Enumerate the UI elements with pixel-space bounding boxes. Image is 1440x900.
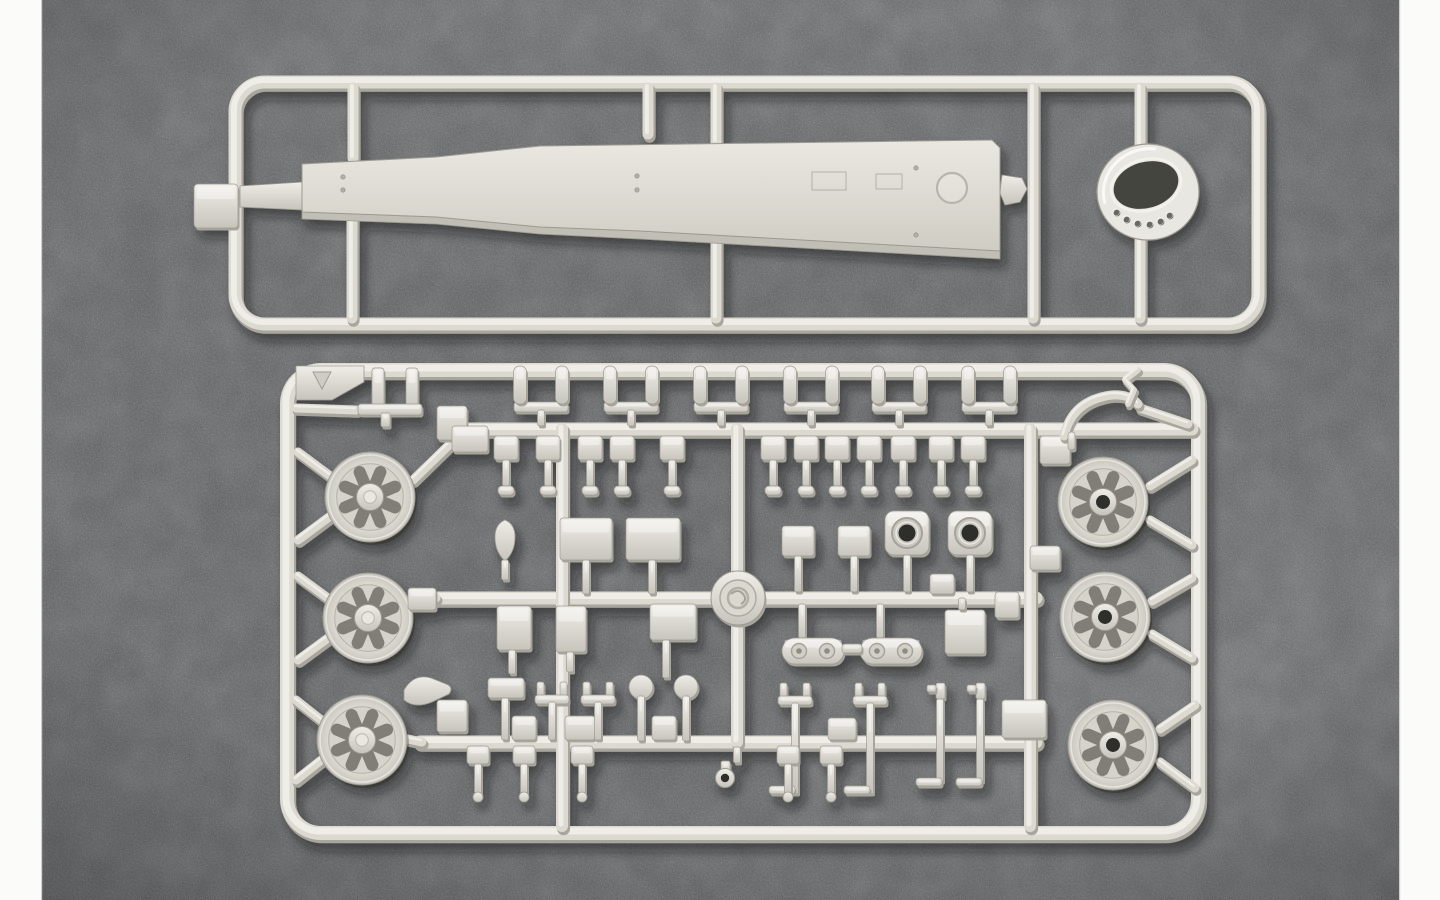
peg-part	[916, 368, 924, 379]
hanging-bracket	[894, 438, 913, 445]
part-leg	[477, 766, 479, 775]
peg-part	[786, 368, 794, 379]
hanging-bracket	[832, 488, 843, 491]
nozzle-part	[979, 685, 983, 690]
part-leg	[879, 606, 881, 616]
peg-part	[606, 368, 614, 379]
needle-part	[1071, 434, 1073, 439]
hanging-bracket	[932, 438, 951, 445]
part-leg	[988, 412, 990, 417]
fork-foot	[847, 788, 868, 791]
part-leg	[569, 654, 571, 660]
fitting-box	[559, 608, 584, 622]
part-leg	[597, 704, 599, 715]
fitting-box	[440, 702, 465, 712]
fitting-box	[998, 594, 1017, 602]
part-leg	[787, 766, 789, 775]
part-leg	[621, 462, 623, 470]
fork-part	[586, 684, 588, 689]
part-leg	[810, 412, 812, 417]
fitting-box	[785, 528, 812, 537]
hanging-bracket	[968, 488, 979, 491]
fitting-box	[491, 680, 522, 686]
part-leg	[898, 412, 900, 417]
hanging-bracket	[801, 488, 812, 491]
hanging-bracket	[764, 438, 783, 445]
nozzle-part	[970, 687, 974, 690]
pi-part	[358, 404, 422, 415]
part-leg	[665, 642, 667, 653]
hanging-bracket	[497, 438, 516, 445]
part-leg	[801, 606, 803, 616]
part-leg	[836, 462, 838, 470]
part-leg	[868, 462, 870, 470]
hanging-bracket	[539, 438, 558, 445]
hanging-bracket	[667, 488, 678, 491]
lower-bracket	[516, 748, 533, 753]
part-leg	[504, 700, 506, 713]
part-leg	[939, 701, 941, 726]
nozzle-foot	[919, 780, 940, 783]
part-leg	[685, 698, 687, 712]
fitting-box	[411, 590, 434, 597]
fork-part	[881, 685, 883, 690]
pi-part	[361, 406, 420, 409]
hanging-bracket	[964, 438, 983, 445]
hanging-bracket	[860, 438, 879, 445]
peg-part	[964, 368, 972, 379]
lower-bracket	[823, 748, 840, 753]
fitting-box	[440, 408, 465, 418]
turret-ring-part	[1097, 144, 1199, 240]
fork-part	[783, 685, 785, 690]
lower-bracket	[780, 748, 797, 753]
fork-part	[563, 684, 565, 689]
peg-part	[558, 368, 566, 379]
part-leg	[523, 766, 525, 775]
hanging-bracket	[613, 438, 632, 445]
part-leg	[551, 704, 553, 715]
fork-part	[540, 684, 542, 689]
hanging-bracket	[864, 488, 875, 491]
pi-part	[384, 415, 388, 419]
part-leg	[961, 600, 963, 604]
part-leg	[940, 462, 942, 470]
part-leg	[805, 462, 807, 470]
hanging-bracket	[663, 438, 682, 445]
fitting-box	[1005, 702, 1044, 713]
peg-part	[828, 368, 836, 379]
fitting-box	[1033, 548, 1058, 555]
part-leg	[505, 462, 507, 470]
nozzle-part	[930, 687, 934, 690]
fitting-box	[655, 718, 674, 725]
part-leg	[720, 412, 722, 417]
part-leg	[797, 558, 799, 569]
part-leg	[772, 462, 774, 470]
fork-part	[538, 697, 567, 700]
fork-part	[806, 685, 808, 690]
pi-part	[409, 370, 416, 383]
link-bar	[845, 646, 860, 649]
ball-head-peg	[629, 675, 653, 699]
right-bar-edge	[1399, 0, 1400, 900]
hanging-bracket	[828, 438, 847, 445]
part-leg	[830, 766, 832, 775]
peg-part	[516, 368, 524, 379]
part-leg	[671, 462, 673, 470]
peg-part	[696, 368, 704, 379]
part-leg	[581, 766, 583, 775]
fitting-box	[841, 528, 868, 537]
part-leg	[511, 652, 513, 659]
fork-part	[781, 698, 810, 701]
fitting-box	[455, 428, 486, 436]
model-kit-sprues-photo: Photograph of two light-gray injection-m…	[0, 0, 1440, 900]
nozzle-foot	[959, 780, 980, 783]
part-leg	[979, 701, 981, 726]
part-leg	[585, 562, 587, 572]
lower-bracket	[574, 748, 591, 753]
part-leg	[972, 462, 974, 470]
hanging-bracket	[898, 488, 909, 491]
part-leg	[540, 412, 542, 417]
fork-part	[856, 698, 885, 701]
hanging-bracket	[797, 438, 816, 445]
sprue-side-tab	[197, 186, 236, 199]
lower-bracket	[470, 748, 487, 753]
part-leg	[906, 557, 908, 568]
fitting-box	[515, 718, 534, 725]
pi-part	[375, 370, 382, 383]
part-leg	[902, 462, 904, 470]
part-leg	[853, 558, 855, 569]
part-leg	[547, 462, 549, 470]
peg-part	[874, 368, 882, 379]
part-leg	[794, 705, 796, 732]
peg-part	[648, 368, 656, 379]
fitting-box	[948, 612, 983, 625]
hanging-bracket	[581, 438, 600, 445]
part-leg	[630, 412, 632, 417]
part-leg	[736, 749, 738, 754]
part-leg	[589, 462, 591, 470]
part-leg	[869, 705, 871, 732]
part-leg	[640, 698, 642, 712]
fitting-box	[653, 606, 694, 617]
part-leg	[504, 562, 506, 568]
hanging-bracket	[617, 488, 628, 491]
fork-part	[858, 685, 860, 690]
fitting-box	[933, 576, 952, 582]
hanging-bracket	[585, 488, 596, 491]
nozzle-part	[939, 685, 943, 690]
keyhole-part	[724, 763, 728, 767]
left-white-bar	[0, 0, 42, 900]
photo-canvas	[0, 0, 1440, 900]
left-bar-edge	[41, 0, 42, 900]
ball-head-peg	[674, 675, 698, 699]
hanging-bracket	[501, 488, 512, 491]
fitting-box	[629, 520, 678, 533]
fitting-box	[500, 608, 529, 621]
fitting-box	[831, 720, 854, 727]
part-leg	[969, 557, 971, 568]
fitting-box	[568, 718, 593, 725]
fork-part	[584, 697, 613, 700]
part-leg	[651, 562, 653, 572]
right-white-bar	[1399, 0, 1440, 900]
hanging-bracket	[768, 488, 779, 491]
peg-part	[738, 368, 746, 379]
part-neck	[240, 182, 303, 210]
peg-part	[1006, 368, 1014, 379]
hanging-bracket	[936, 488, 947, 491]
fitting-box	[563, 520, 610, 533]
fork-part	[609, 684, 611, 689]
hanging-bracket	[543, 488, 554, 491]
